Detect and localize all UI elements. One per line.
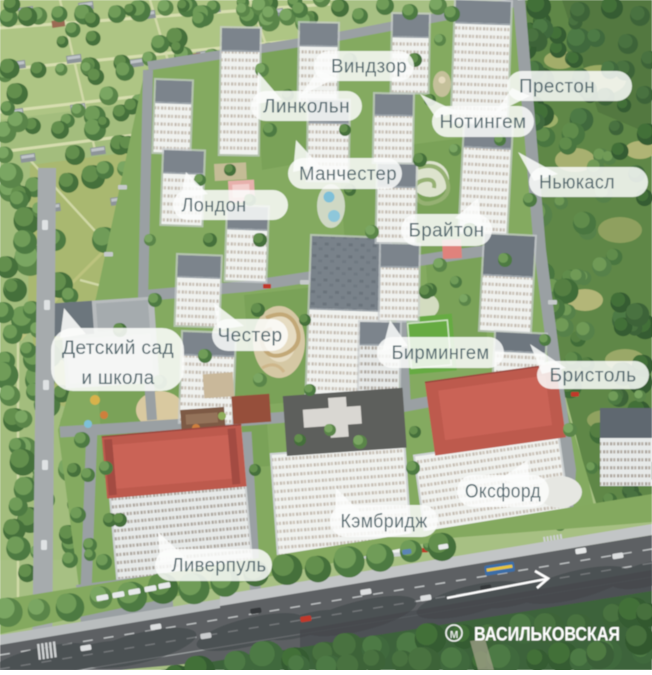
svg-text:Ньюкасл: Ньюкасл [539,173,615,194]
svg-text:Лондон: Лондон [182,196,247,217]
svg-text:ВАСИЛЬКОВСКАЯ: ВАСИЛЬКОВСКАЯ [474,625,620,646]
svg-text:Детский сад: Детский сад [62,338,174,359]
svg-text:Кэмбридж: Кэмбридж [341,512,428,533]
svg-text:и школа: и школа [82,368,155,389]
svg-text:Честер: Честер [218,326,283,347]
svg-text:м: м [450,627,459,641]
svg-text:Ливерпуль: Ливерпуль [172,556,267,577]
svg-text:Бирмингем: Бирмингем [392,343,490,364]
svg-text:Престон: Престон [519,77,595,98]
svg-text:Линкольн: Линкольн [263,97,350,118]
svg-text:Манчестер: Манчестер [299,164,397,185]
svg-text:Брайтон: Брайтон [409,221,485,242]
svg-text:Виндзор: Виндзор [331,57,407,78]
svg-text:Нотингем: Нотингем [440,112,527,133]
svg-text:Бристоль: Бристоль [550,366,637,387]
svg-text:Оксфорд: Оксфорд [465,482,541,503]
